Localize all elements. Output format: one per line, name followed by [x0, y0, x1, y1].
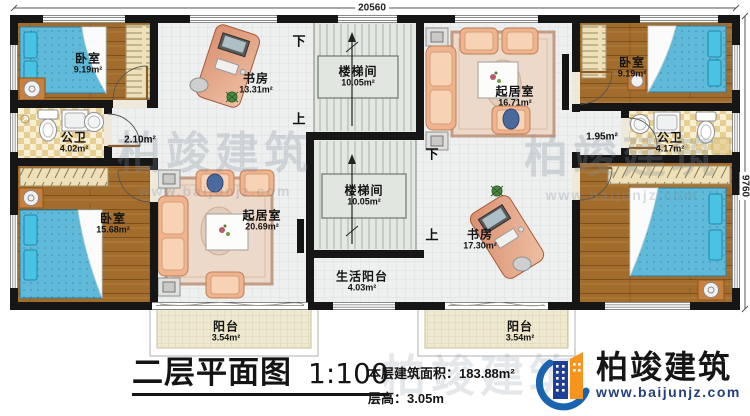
room-label-study-tl: 书房 13.31m²	[239, 72, 273, 95]
floor-area-value: 183.88m²	[459, 366, 515, 381]
stair-dir-down-top: 下	[292, 31, 305, 50]
brand-website: www.baijunjz.com	[596, 385, 741, 399]
plant-study-br	[491, 186, 503, 196]
wardrobe-bedroom-br	[608, 166, 730, 184]
plant-study-tl	[226, 92, 238, 102]
floor-area-line: 本层建筑面积：183.88m²	[368, 361, 515, 386]
brand-name: 柏竣建筑	[596, 349, 741, 385]
title-block: 二层平面图 1:100	[132, 357, 389, 396]
room-label-bath-right: 公卫 4.17m²	[656, 131, 685, 154]
tv-living-tr	[562, 54, 569, 110]
floor-stats: 本层建筑面积：183.88m² 层高：3.05m	[368, 361, 515, 411]
person-figure	[207, 174, 223, 192]
floor-height-line: 层高：3.05m	[368, 386, 515, 411]
closet-bedroom-tr	[582, 25, 606, 78]
stair-dir-up-top: 上	[292, 109, 305, 128]
dimension-height: 9760	[740, 172, 750, 200]
page-title: 二层平面图	[132, 357, 292, 388]
stair-dir-up-bottom: 上	[425, 225, 438, 244]
sofa-set-living-tr	[426, 28, 554, 150]
stair-dir-down-bottom: 下	[425, 144, 438, 163]
room-label-hall-right: 1.95m²	[586, 132, 618, 143]
room-label-stair-top: 楼梯间 10.05m²	[338, 65, 377, 88]
shower-corner	[712, 138, 730, 154]
room-label-bedroom-tl: 卧室 9.19m²	[74, 52, 103, 75]
room-label-stair-bottom: 楼梯间 10.05m²	[344, 184, 383, 207]
floor-plan-sheet: 柏竣建筑 www.baijunjz.com 柏竣建筑 www.baijunjz.…	[0, 0, 750, 416]
dimension-width: 20560	[355, 3, 389, 14]
wardrobe-bedroom-bl	[20, 168, 108, 186]
room-label-living-tr: 起居室 16.71m²	[495, 85, 534, 108]
room-label-hall-left: 2.10m²	[124, 135, 156, 146]
room-label-study-br: 书房 17.30m²	[463, 228, 497, 251]
floor-height-value: 3.05m	[407, 391, 444, 406]
person-figure	[503, 109, 519, 129]
room-label-bedroom-tr: 卧室 9.19m²	[618, 56, 647, 79]
room-label-service-balcony: 生活阳台 4.03m²	[336, 270, 388, 293]
room-label-balcony-left: 阳台 3.54m²	[212, 320, 241, 343]
chair-study-tl	[190, 78, 208, 92]
room-label-balcony-right: 阳台 3.54m²	[506, 320, 535, 343]
sofa-set-living-bl	[158, 170, 274, 298]
toilet-icon	[40, 119, 57, 141]
brand-block: 柏竣建筑 www.baijunjz.com	[536, 349, 741, 411]
chair-study-br	[513, 257, 531, 271]
room-label-bath-left: 公卫 4.02m²	[60, 131, 89, 154]
brand-logo-icon	[536, 349, 590, 411]
room-label-bedroom-bl: 卧室 15.68m²	[96, 212, 130, 235]
room-label-living-bl: 起居室 20.69m²	[242, 209, 281, 232]
tv-living-bl	[297, 219, 304, 253]
